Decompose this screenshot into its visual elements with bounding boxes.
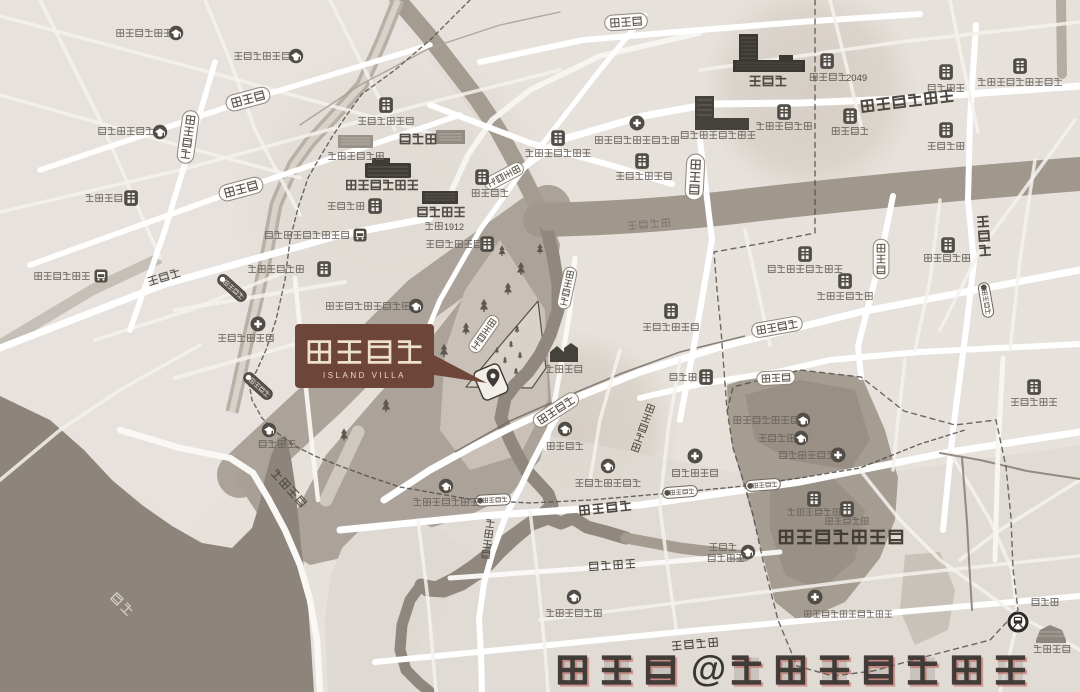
- svg-text:1912: 1912: [444, 222, 464, 232]
- svg-text:2049: 2049: [846, 73, 867, 84]
- svg-text:@: @: [691, 648, 726, 689]
- svg-text:ISLAND VILLA: ISLAND VILLA: [323, 371, 406, 380]
